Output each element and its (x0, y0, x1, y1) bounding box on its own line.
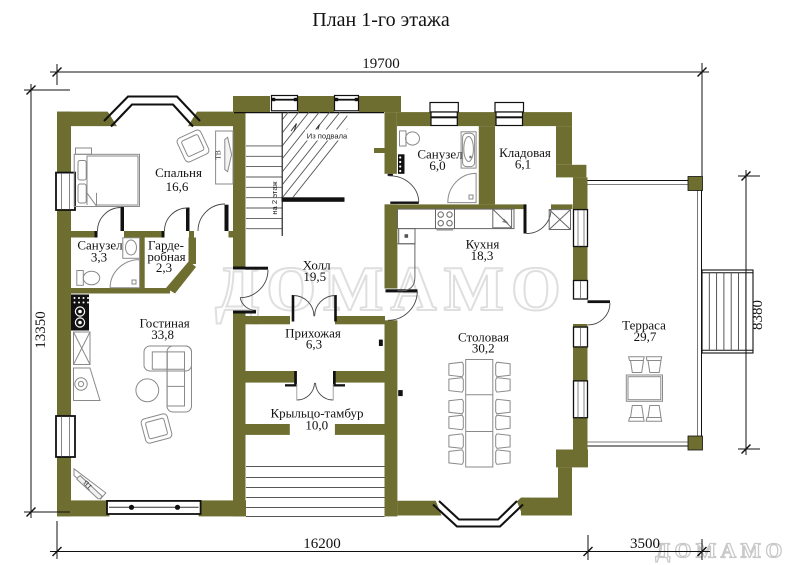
svg-text:6,3: 6,3 (306, 337, 322, 352)
svg-text:ТВ: ТВ (214, 150, 223, 160)
svg-text:2,3: 2,3 (156, 260, 172, 275)
svg-text:Из подвала: Из подвала (307, 132, 348, 141)
svg-text:3500: 3500 (630, 536, 660, 552)
svg-text:29,7: 29,7 (634, 329, 657, 344)
svg-text:16200: 16200 (303, 536, 341, 552)
svg-text:33,8: 33,8 (151, 327, 174, 342)
svg-text:3,3: 3,3 (91, 250, 107, 265)
svg-text:8380: 8380 (750, 300, 766, 330)
svg-text:ДОМАМО: ДОМАМО (655, 539, 786, 563)
svg-text:18,3: 18,3 (471, 248, 494, 263)
svg-text:13350: 13350 (33, 311, 49, 349)
svg-text:10,0: 10,0 (305, 418, 328, 433)
svg-text:Спальня: Спальня (155, 165, 202, 180)
svg-text:на 2 этаж: на 2 этаж (270, 180, 279, 214)
svg-text:30,2: 30,2 (472, 341, 495, 356)
svg-text:19,5: 19,5 (303, 269, 326, 284)
svg-text:6,0: 6,0 (429, 158, 445, 173)
svg-text:План 1-го этажа: План 1-го этажа (312, 9, 450, 31)
svg-text:16,6: 16,6 (166, 179, 189, 194)
svg-text:19700: 19700 (362, 56, 400, 72)
svg-text:6,1: 6,1 (515, 157, 531, 172)
